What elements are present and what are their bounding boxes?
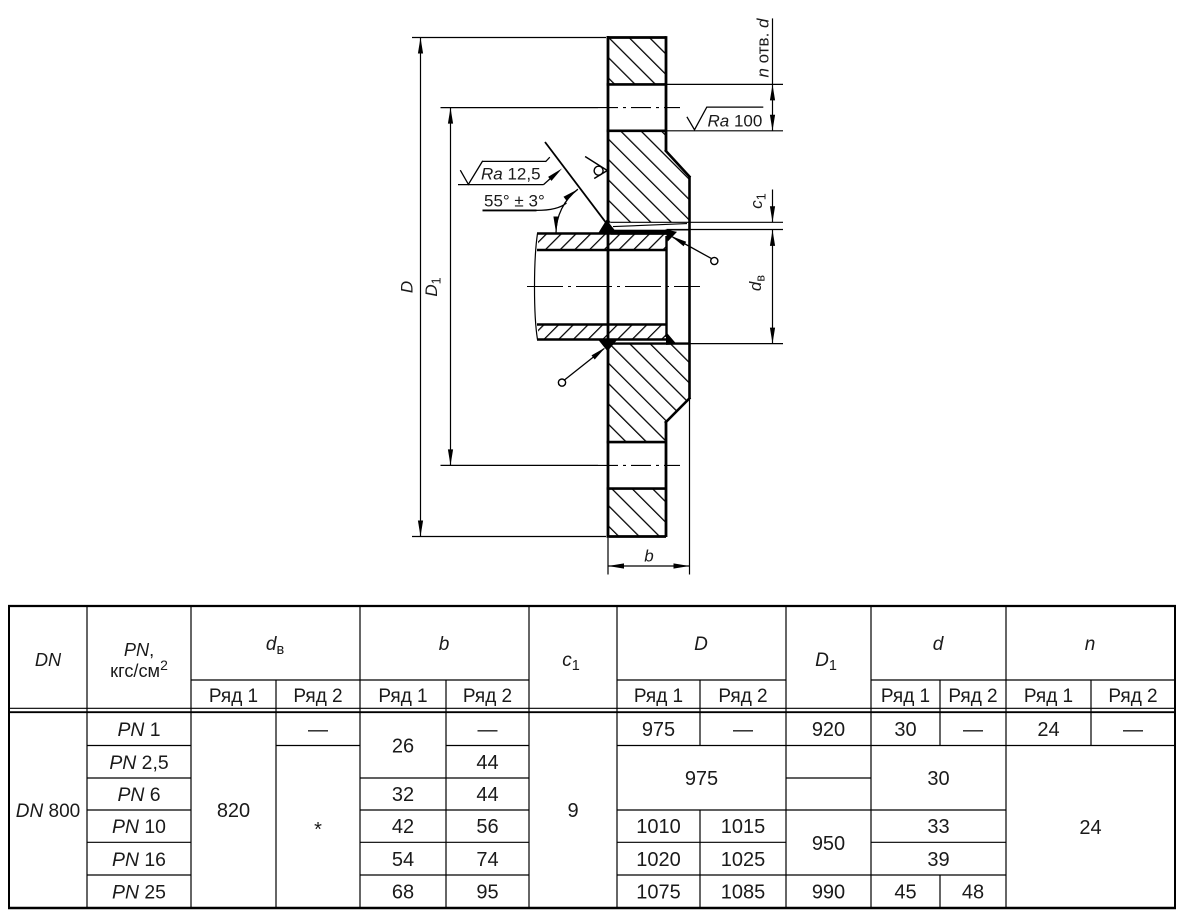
svg-text:Ряд 2: Ряд 2 <box>293 686 342 707</box>
svg-text:кгс/см2: кгс/см2 <box>110 657 168 681</box>
svg-text:—: — <box>308 719 328 741</box>
svg-text:9: 9 <box>567 800 578 822</box>
svg-text:Ряд 2: Ряд 2 <box>718 686 767 707</box>
svg-text:1015: 1015 <box>721 816 766 838</box>
svg-text:Ряд 1: Ряд 1 <box>881 686 930 707</box>
svg-text:Ряд 1: Ряд 1 <box>1024 686 1073 707</box>
svg-text:Ряд 1: Ряд 1 <box>209 686 258 707</box>
svg-text:1025: 1025 <box>721 849 766 871</box>
svg-text:30: 30 <box>894 719 916 741</box>
svg-text:—: — <box>1123 719 1143 741</box>
svg-text:26: 26 <box>392 736 414 758</box>
svg-text:1085: 1085 <box>721 882 766 904</box>
svg-text:Ряд 2: Ряд 2 <box>1108 686 1157 707</box>
svg-text:*: * <box>314 819 322 841</box>
svg-text:74: 74 <box>476 849 498 871</box>
svg-text:44: 44 <box>476 784 498 806</box>
svg-text:42: 42 <box>392 816 414 838</box>
svg-text:PN,: PN, <box>124 640 154 660</box>
svg-text:n: n <box>1085 634 1096 655</box>
svg-text:—: — <box>733 719 753 741</box>
svg-text:Ряд 2: Ряд 2 <box>948 686 997 707</box>
svg-text:DN 800: DN 800 <box>16 801 80 822</box>
svg-text:Ряд 2: Ряд 2 <box>463 686 512 707</box>
svg-text:dв: dв <box>266 634 285 658</box>
svg-text:D1: D1 <box>815 650 837 674</box>
svg-text:68: 68 <box>392 882 414 904</box>
svg-text:PN 2,5: PN 2,5 <box>109 752 168 774</box>
svg-text:b: b <box>439 634 450 655</box>
svg-text:Ряд 1: Ряд 1 <box>378 686 427 707</box>
svg-text:Ra 12,5: Ra 12,5 <box>481 165 541 184</box>
svg-text:PN 10: PN 10 <box>112 816 166 838</box>
svg-text:PN 1: PN 1 <box>117 719 160 741</box>
svg-text:—: — <box>478 719 498 741</box>
svg-text:DN: DN <box>35 650 62 670</box>
svg-text:24: 24 <box>1079 817 1101 839</box>
svg-text:1010: 1010 <box>636 816 681 838</box>
svg-text:Ряд 1: Ряд 1 <box>634 686 683 707</box>
svg-text:56: 56 <box>476 816 498 838</box>
svg-text:c1: c1 <box>747 193 769 209</box>
svg-text:920: 920 <box>812 719 845 741</box>
svg-text:n отв. d: n отв. d <box>754 18 773 78</box>
svg-text:1075: 1075 <box>636 882 681 904</box>
svg-text:b: b <box>644 547 653 566</box>
svg-text:48: 48 <box>962 882 984 904</box>
svg-text:95: 95 <box>476 882 498 904</box>
svg-text:55° ± 3°: 55° ± 3° <box>484 192 545 211</box>
svg-text:39: 39 <box>927 849 949 871</box>
svg-text:33: 33 <box>927 816 949 838</box>
svg-text:c1: c1 <box>562 650 580 674</box>
svg-text:Ra 100: Ra 100 <box>708 112 763 131</box>
svg-text:975: 975 <box>685 768 718 790</box>
svg-text:D: D <box>694 634 708 655</box>
svg-text:dв: dв <box>746 275 768 291</box>
svg-text:PN 16: PN 16 <box>112 849 166 871</box>
svg-text:PN 25: PN 25 <box>112 882 166 904</box>
svg-text:24: 24 <box>1037 719 1059 741</box>
svg-text:D1: D1 <box>422 277 444 296</box>
svg-text:1020: 1020 <box>636 849 681 871</box>
svg-text:PN 6: PN 6 <box>117 784 160 806</box>
svg-text:45: 45 <box>894 882 916 904</box>
svg-text:30: 30 <box>927 768 949 790</box>
svg-text:D: D <box>398 281 417 293</box>
svg-text:d: d <box>933 634 945 655</box>
svg-text:975: 975 <box>642 719 675 741</box>
svg-text:44: 44 <box>476 752 498 774</box>
svg-text:—: — <box>963 719 983 741</box>
svg-text:990: 990 <box>812 882 845 904</box>
svg-text:950: 950 <box>812 833 845 855</box>
svg-text:32: 32 <box>392 784 414 806</box>
svg-text:820: 820 <box>217 800 250 822</box>
svg-text:54: 54 <box>392 849 414 871</box>
